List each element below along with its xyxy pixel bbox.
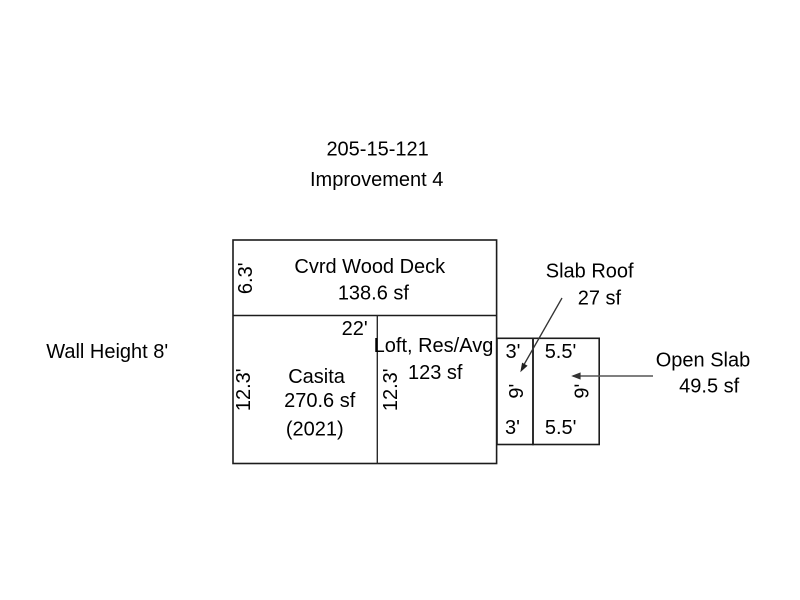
svg-text:12.3': 12.3' (380, 368, 402, 411)
svg-text:49.5 sf: 49.5 sf (679, 375, 739, 397)
svg-text:9': 9' (506, 384, 528, 399)
svg-text:138.6 sf: 138.6 sf (338, 282, 410, 304)
svg-text:205-15-121: 205-15-121 (326, 138, 428, 160)
svg-text:270.6 sf: 270.6 sf (284, 390, 356, 412)
svg-text:9': 9' (572, 384, 594, 399)
svg-text:22': 22' (342, 318, 368, 340)
svg-text:3': 3' (506, 341, 521, 363)
svg-text:27 sf: 27 sf (578, 288, 622, 310)
svg-text:(2021): (2021) (286, 418, 344, 440)
svg-text:Open Slab: Open Slab (656, 349, 751, 371)
svg-text:123 sf: 123 sf (408, 362, 463, 384)
svg-text:Improvement 4: Improvement 4 (310, 169, 443, 191)
svg-text:Casita: Casita (288, 366, 346, 388)
svg-text:12.3': 12.3' (233, 368, 255, 411)
svg-text:Loft, Res/Avg: Loft, Res/Avg (374, 335, 494, 357)
svg-text:3': 3' (505, 417, 520, 439)
svg-text:Cvrd Wood Deck: Cvrd Wood Deck (294, 256, 446, 278)
svg-text:5.5': 5.5' (545, 417, 577, 439)
svg-text:5.5': 5.5' (545, 341, 577, 363)
svg-text:Slab Roof: Slab Roof (546, 260, 634, 282)
svg-text:6.3': 6.3' (235, 262, 257, 294)
svg-text:Wall Height 8': Wall Height 8' (46, 341, 168, 363)
